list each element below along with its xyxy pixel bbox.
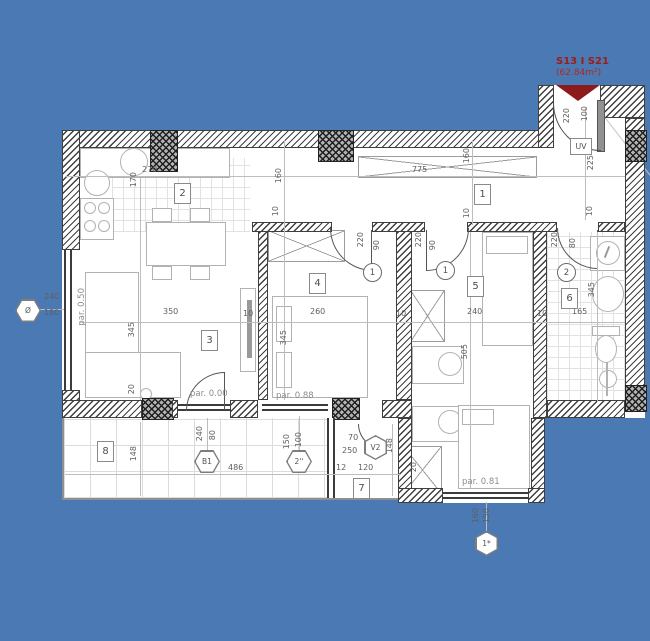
wall-bath-bottom (547, 400, 625, 418)
room-label-8: 8 (97, 441, 114, 462)
dim-label: 165 (572, 308, 587, 316)
room-label-1: 1 (474, 184, 491, 205)
floor-plan-canvas: 270 170 775 160 160 10 10 10 350 10 260 … (0, 0, 650, 641)
dim-label: 10 (463, 208, 471, 218)
column (318, 130, 354, 162)
dim-label: 150 (283, 434, 291, 449)
dim-label: 20 (410, 462, 418, 472)
room4-window-sill (262, 404, 328, 411)
chair (152, 266, 172, 280)
dim-label: 240 (196, 426, 204, 441)
dim-label: 345 (280, 330, 288, 345)
dim-line (472, 140, 473, 225)
wall-living-room4 (258, 222, 268, 400)
water-heater (599, 370, 617, 388)
dim-label: 260 (310, 308, 325, 316)
dim-label: 20 (128, 384, 136, 394)
dim-label: 220 (563, 108, 571, 123)
entrance-arrow (556, 85, 600, 101)
window-marker-1: 1* (475, 531, 498, 556)
dim-label: 350 (163, 308, 178, 316)
dim-line (140, 178, 141, 400)
burner (84, 220, 96, 232)
dim-label: 150 (483, 508, 491, 523)
dim-line (80, 322, 625, 323)
dim-label: 10 (243, 310, 253, 318)
wall-hall-d (598, 222, 625, 232)
dim-label: 240 (467, 308, 482, 316)
level-label: par. 0.88 (276, 392, 314, 401)
dim-label: 775 (412, 166, 427, 174)
door-tag-2: 2 (557, 263, 576, 282)
window-left (64, 250, 72, 390)
heater-pipe (606, 362, 608, 396)
wall-left-upper (62, 130, 80, 250)
level-label: par. 0.00 (190, 390, 228, 399)
room-label-6: 6 (561, 288, 578, 309)
wall-top (62, 130, 548, 148)
wall-room5ext-bottom-b (528, 488, 545, 503)
dim-label: 180 (44, 309, 59, 317)
dim-label: 220 (357, 232, 365, 247)
wardrobe (410, 290, 445, 342)
level-label: par. 0.50 (78, 288, 87, 326)
dim-label: 10 (272, 206, 280, 216)
dim-label: 345 (128, 322, 136, 337)
dim-line (392, 424, 393, 496)
room5-door-leaf (426, 230, 427, 270)
loggia-window-side (327, 418, 335, 498)
unit-number: S13 I S21 (556, 56, 609, 68)
dim-label: 345 (588, 282, 596, 297)
level-label: par. 0.81 (462, 478, 500, 487)
room5-window-sill (443, 492, 528, 499)
dim-label: 90 (429, 240, 437, 250)
dim-line (597, 232, 598, 402)
dim-label: 225 (587, 155, 595, 170)
desk-chair (438, 352, 462, 376)
dim-line (470, 232, 471, 488)
room-label-7: 7 (353, 478, 370, 499)
chair (152, 208, 172, 222)
chair (190, 266, 210, 280)
wall-room5-bath (533, 222, 547, 418)
dim-label: 90 (373, 240, 381, 250)
dim-label: 486 (228, 464, 243, 472)
pillow (462, 409, 494, 425)
washing-machine-drum (596, 241, 620, 265)
dim-line (65, 176, 625, 177)
dim-label: 10 (537, 310, 547, 318)
dim-label: 240 (44, 293, 59, 301)
dim-label: 160 (472, 508, 480, 523)
dim-line (140, 422, 141, 496)
dim-label: 70 (348, 434, 358, 442)
pillow (486, 236, 528, 254)
dim-label: 220 (415, 232, 423, 247)
wall-hall-a (252, 222, 332, 232)
door-tag-1: 1 (363, 263, 382, 282)
room-label-2: 2 (174, 183, 191, 204)
toilet-bowl (595, 335, 617, 363)
dim-label: 10 (396, 310, 406, 318)
dim-label: 250 (342, 447, 357, 455)
unit-area: (62.84m²) (556, 68, 609, 79)
door-tag-1b: 1 (436, 261, 455, 280)
wall-hall-c (467, 222, 557, 232)
dim-label: 148 (130, 446, 138, 461)
wall-room5ext-bottom-a (398, 488, 443, 503)
column (625, 130, 647, 162)
dim-label: 80 (569, 238, 577, 248)
room-label-4: 4 (309, 273, 326, 294)
dim-label: 100 (295, 432, 303, 447)
wall-bottom-a (62, 400, 142, 418)
column (625, 385, 647, 412)
dim-label: 160 (463, 148, 471, 163)
unit-title: S13 I S21 (62.84m²) (556, 56, 609, 79)
entrance-door-tag: UV (570, 138, 592, 155)
chair (190, 208, 210, 222)
dim-label: 270 (142, 166, 157, 174)
window-marker-left: Ø (15, 299, 41, 322)
room-label-5: 5 (467, 276, 484, 297)
dim-line (284, 140, 285, 400)
burner (98, 202, 110, 214)
dim-label: 148 (386, 438, 394, 453)
wall-hall-b (372, 222, 425, 232)
dining-table (146, 222, 226, 266)
wall-bottom-d (382, 400, 412, 418)
kitchen-boiler (84, 170, 110, 196)
column (142, 398, 174, 420)
dim-label: 120 (358, 464, 373, 472)
entry-wall-right (600, 85, 645, 118)
column (332, 398, 360, 420)
dim-label: 100 (581, 106, 589, 121)
dim-label: 160 (275, 168, 283, 183)
burner (84, 202, 96, 214)
hall-wardrobe (358, 156, 537, 178)
dim-label: 10 (586, 206, 594, 216)
dim-label: 12 (336, 464, 346, 472)
dim-label: 80 (209, 430, 217, 440)
dim-line (65, 474, 400, 475)
dim-label: 170 (130, 172, 138, 187)
room-label-3: 3 (201, 330, 218, 351)
entry-wall-left-stub (538, 85, 554, 148)
burner (98, 220, 110, 232)
dim-label: 220 (551, 232, 559, 247)
dim-label: 505 (461, 344, 469, 359)
wall-bottom-c (230, 400, 258, 418)
